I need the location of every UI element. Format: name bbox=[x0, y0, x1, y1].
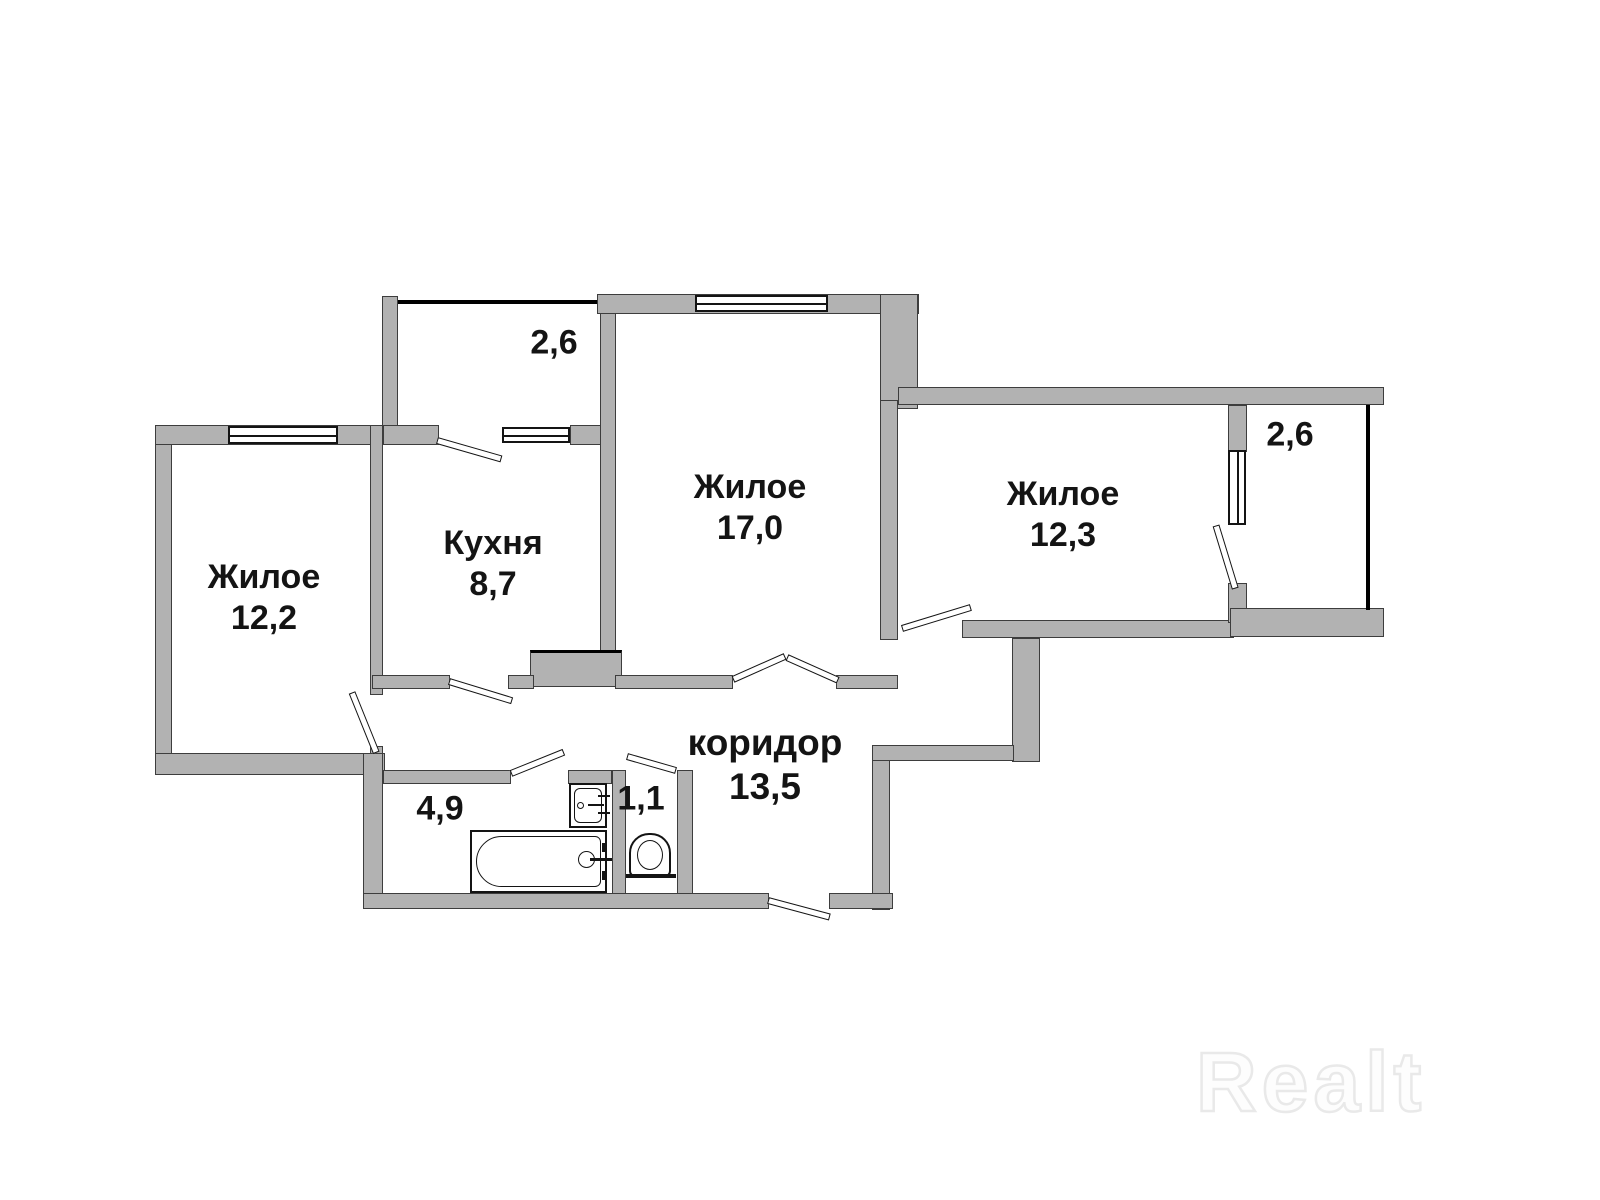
room-name: Кухня bbox=[443, 523, 542, 564]
balcony-area: 2,6 bbox=[530, 323, 577, 364]
wall bbox=[829, 893, 893, 909]
wall bbox=[600, 294, 616, 654]
wall bbox=[880, 400, 898, 640]
wall bbox=[155, 425, 172, 775]
wall bbox=[962, 620, 1234, 638]
wall bbox=[383, 425, 439, 445]
door-leaf-toilet bbox=[626, 753, 677, 774]
room-area: 12,3 bbox=[1030, 515, 1096, 556]
bathroom-area: 4,9 bbox=[416, 789, 463, 830]
wall bbox=[363, 753, 383, 908]
wall bbox=[370, 425, 383, 695]
room-name: Жилое bbox=[694, 467, 806, 508]
room-label-living-1: Жилое 12,2 bbox=[208, 557, 320, 639]
toilet-label: 1,1 bbox=[617, 779, 664, 820]
room-label-living-2: Жилое 17,0 bbox=[694, 467, 806, 549]
door-leaf-balcony-right bbox=[1213, 524, 1239, 589]
wall bbox=[570, 425, 602, 445]
door-leaf-room1 bbox=[349, 691, 380, 754]
door-leaf-room2-right bbox=[786, 654, 840, 683]
bathtub-faucet-mark bbox=[602, 871, 605, 880]
window bbox=[1228, 450, 1246, 525]
wall bbox=[568, 770, 612, 784]
room-label-corridor: коридор 13,5 bbox=[688, 721, 843, 809]
room-name: Жилое bbox=[208, 557, 320, 598]
duct-block bbox=[530, 650, 622, 687]
wall bbox=[836, 675, 898, 689]
wall bbox=[1012, 638, 1040, 762]
wall bbox=[615, 675, 733, 689]
toilet-bowl bbox=[637, 840, 663, 870]
wall bbox=[155, 753, 385, 775]
door-leaf-kitchen bbox=[448, 678, 513, 704]
sink-tap bbox=[588, 804, 604, 806]
room-area: 12,2 bbox=[231, 598, 297, 639]
sink-drain bbox=[577, 802, 584, 809]
room-label-living-3: Жилое 12,3 bbox=[1007, 474, 1119, 556]
bathtub-faucet-mark bbox=[602, 843, 605, 852]
balcony-glazing bbox=[398, 300, 598, 304]
toilet-base-line bbox=[626, 874, 676, 878]
toilet-area: 1,1 bbox=[617, 779, 664, 820]
window bbox=[502, 427, 570, 443]
bathtub-faucet-stem bbox=[590, 858, 612, 861]
wall bbox=[1228, 405, 1247, 452]
door-leaf-balcony-top bbox=[436, 437, 502, 462]
room-area: 17,0 bbox=[717, 508, 783, 549]
window bbox=[228, 426, 338, 444]
room-label-kitchen: Кухня 8,7 bbox=[443, 523, 542, 605]
room-area: 13,5 bbox=[729, 765, 801, 809]
door-leaf-bathroom bbox=[510, 749, 565, 777]
wall bbox=[508, 675, 534, 689]
window bbox=[695, 295, 828, 312]
wall bbox=[898, 387, 1384, 405]
bathroom-label: 4,9 bbox=[416, 789, 463, 830]
sink-tap-mark bbox=[598, 795, 610, 797]
wall bbox=[872, 760, 890, 910]
realt-watermark: Realt bbox=[1196, 1034, 1426, 1131]
sink-tap-mark bbox=[598, 812, 610, 814]
balcony-area: 2,6 bbox=[1266, 415, 1313, 456]
wall bbox=[383, 770, 511, 784]
balcony-label-top: 2,6 bbox=[530, 323, 577, 364]
wall bbox=[382, 296, 398, 427]
balcony-glazing bbox=[1366, 405, 1370, 610]
room-area: 8,7 bbox=[469, 564, 516, 605]
wall bbox=[372, 675, 450, 689]
room-name: коридор bbox=[688, 721, 843, 765]
room-name: Жилое bbox=[1007, 474, 1119, 515]
wall bbox=[872, 745, 1014, 761]
wall bbox=[1230, 608, 1384, 637]
door-leaf-room2-left bbox=[732, 653, 787, 683]
door-leaf-entrance bbox=[767, 897, 831, 920]
balcony-label-right: 2,6 bbox=[1266, 415, 1313, 456]
wall bbox=[363, 893, 769, 909]
floor-plan: Жилое 12,2 Кухня 8,7 Жилое 17,0 Жилое 12… bbox=[0, 0, 1600, 1200]
